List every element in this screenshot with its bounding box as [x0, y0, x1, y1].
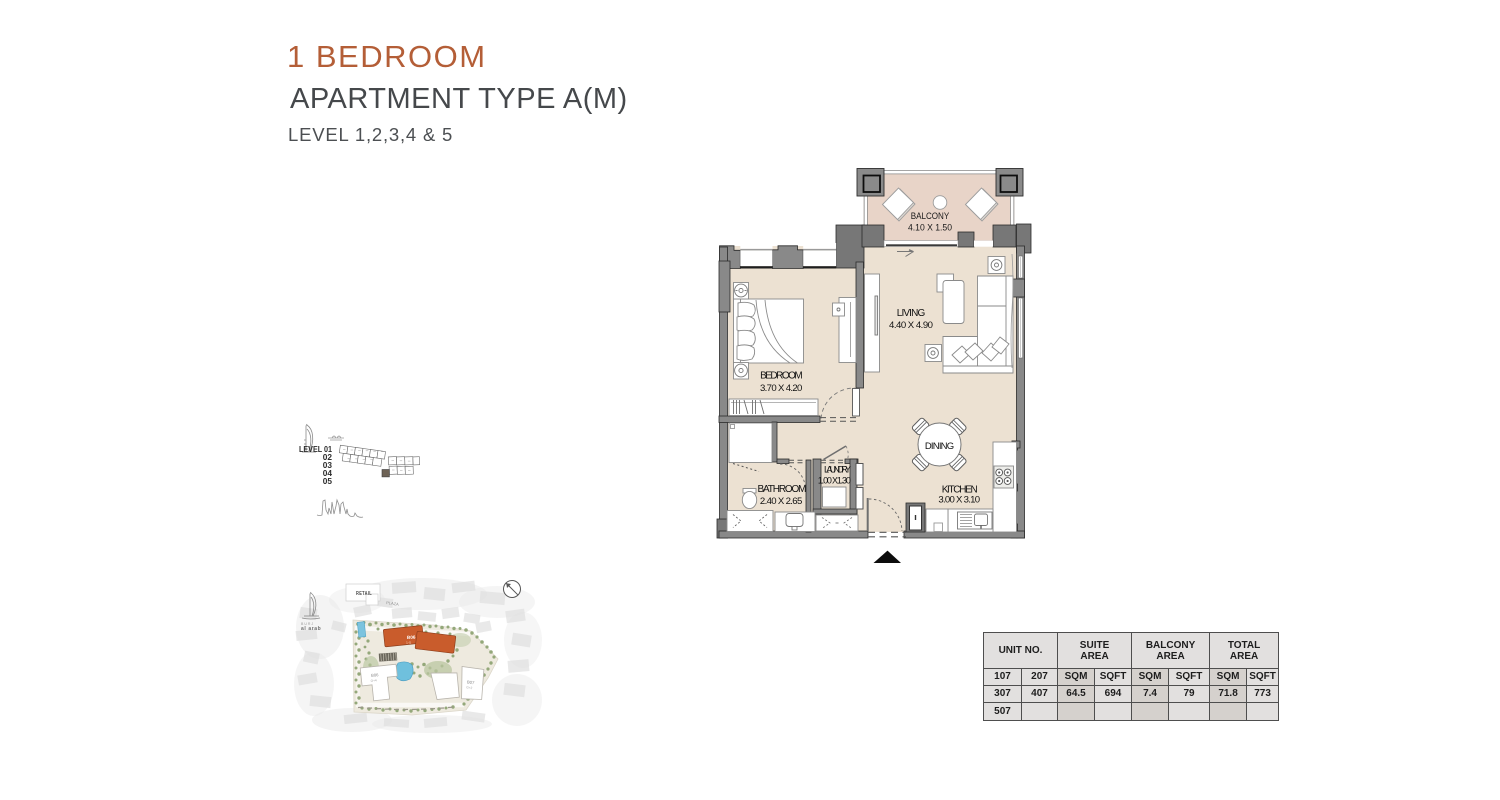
svg-text:BALCONY: BALCONY [911, 211, 950, 221]
svg-text:2.40 X 2.65: 2.40 X 2.65 [760, 496, 802, 507]
svg-text:1.00 X1.30: 1.00 X1.30 [818, 475, 851, 485]
svg-text:3.70 X 4.20: 3.70 X 4.20 [760, 383, 802, 394]
svg-text:DINING: DINING [925, 441, 954, 452]
svg-text:LAUNDRY: LAUNDRY [824, 464, 851, 474]
svg-text:4.40 X 4.90: 4.40 X 4.90 [889, 320, 933, 331]
svg-text:1-5: 1-5 [406, 641, 411, 645]
svg-text:BATHROOM: BATHROOM [758, 484, 807, 495]
svg-text:RETAIL: RETAIL [356, 591, 372, 597]
svg-text:3.00 X 3.10: 3.00 X 3.10 [938, 495, 980, 506]
svg-text:B06: B06 [407, 635, 416, 640]
svg-text:B06: B06 [371, 672, 380, 678]
svg-text:LIVING: LIVING [897, 308, 926, 319]
svg-text:05: 05 [323, 476, 333, 486]
svg-text:4.10 X 1.50: 4.10 X 1.50 [908, 223, 952, 233]
svg-text:G+4: G+4 [370, 678, 377, 683]
svg-text:BEDROOM: BEDROOM [760, 371, 803, 382]
svg-text:al arab: al arab [301, 626, 321, 632]
